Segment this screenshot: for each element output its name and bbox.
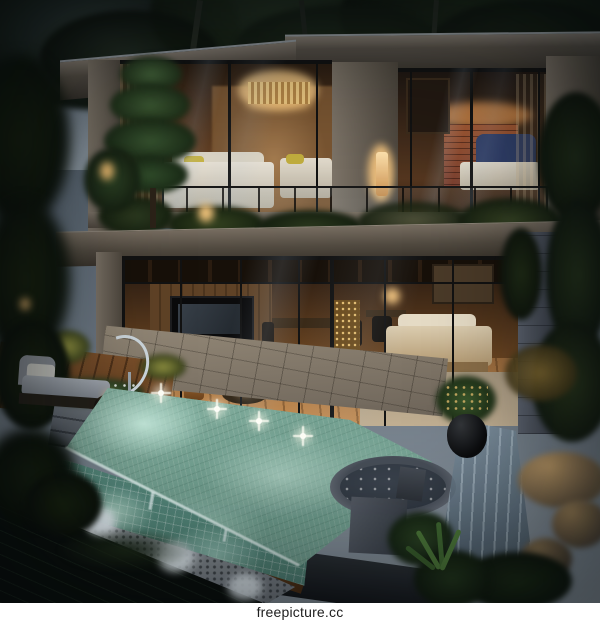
pool-light-sparkle xyxy=(256,418,262,424)
conifer-trunk xyxy=(150,188,156,228)
jacuzzi-spout-stone xyxy=(396,466,426,501)
garden-light xyxy=(20,298,30,310)
freepicture-photo-card: freepicture.cc xyxy=(0,0,600,620)
potted-plant-warm-tips xyxy=(444,384,488,414)
boulder-large xyxy=(518,452,600,508)
balcony-lantern-glow xyxy=(198,204,214,222)
caption-bar: freepicture.cc xyxy=(0,603,600,620)
black-planter-vase xyxy=(447,414,487,458)
pond-branch-silhouette xyxy=(60,530,190,570)
pool-light-sparkle xyxy=(214,406,220,412)
hanging-vine xyxy=(500,228,542,320)
foreground-dark-leaves-2 xyxy=(26,472,102,536)
pool-light-sparkle xyxy=(300,433,306,439)
wall-lantern-glow xyxy=(100,162,114,180)
right-warm-lit-leaves xyxy=(505,345,577,401)
villa-dusk-photo xyxy=(0,0,600,603)
pool-uplight xyxy=(228,574,262,600)
juniper-shrub xyxy=(84,148,140,212)
pool-light-sparkle xyxy=(158,390,164,396)
watermark-text: freepicture.cc xyxy=(257,605,344,619)
